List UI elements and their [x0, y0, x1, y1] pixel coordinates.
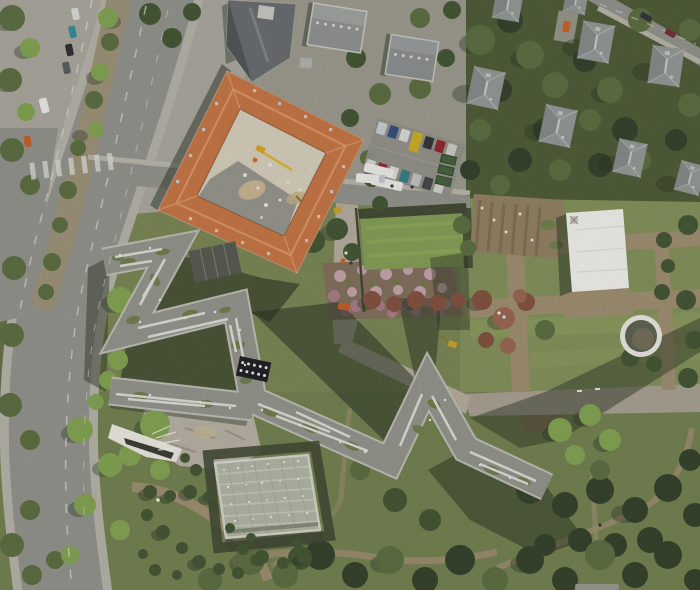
aerial-photo-canvas — [0, 0, 700, 590]
aerial-photo — [0, 0, 700, 590]
grain-light-overlay — [0, 0, 700, 590]
